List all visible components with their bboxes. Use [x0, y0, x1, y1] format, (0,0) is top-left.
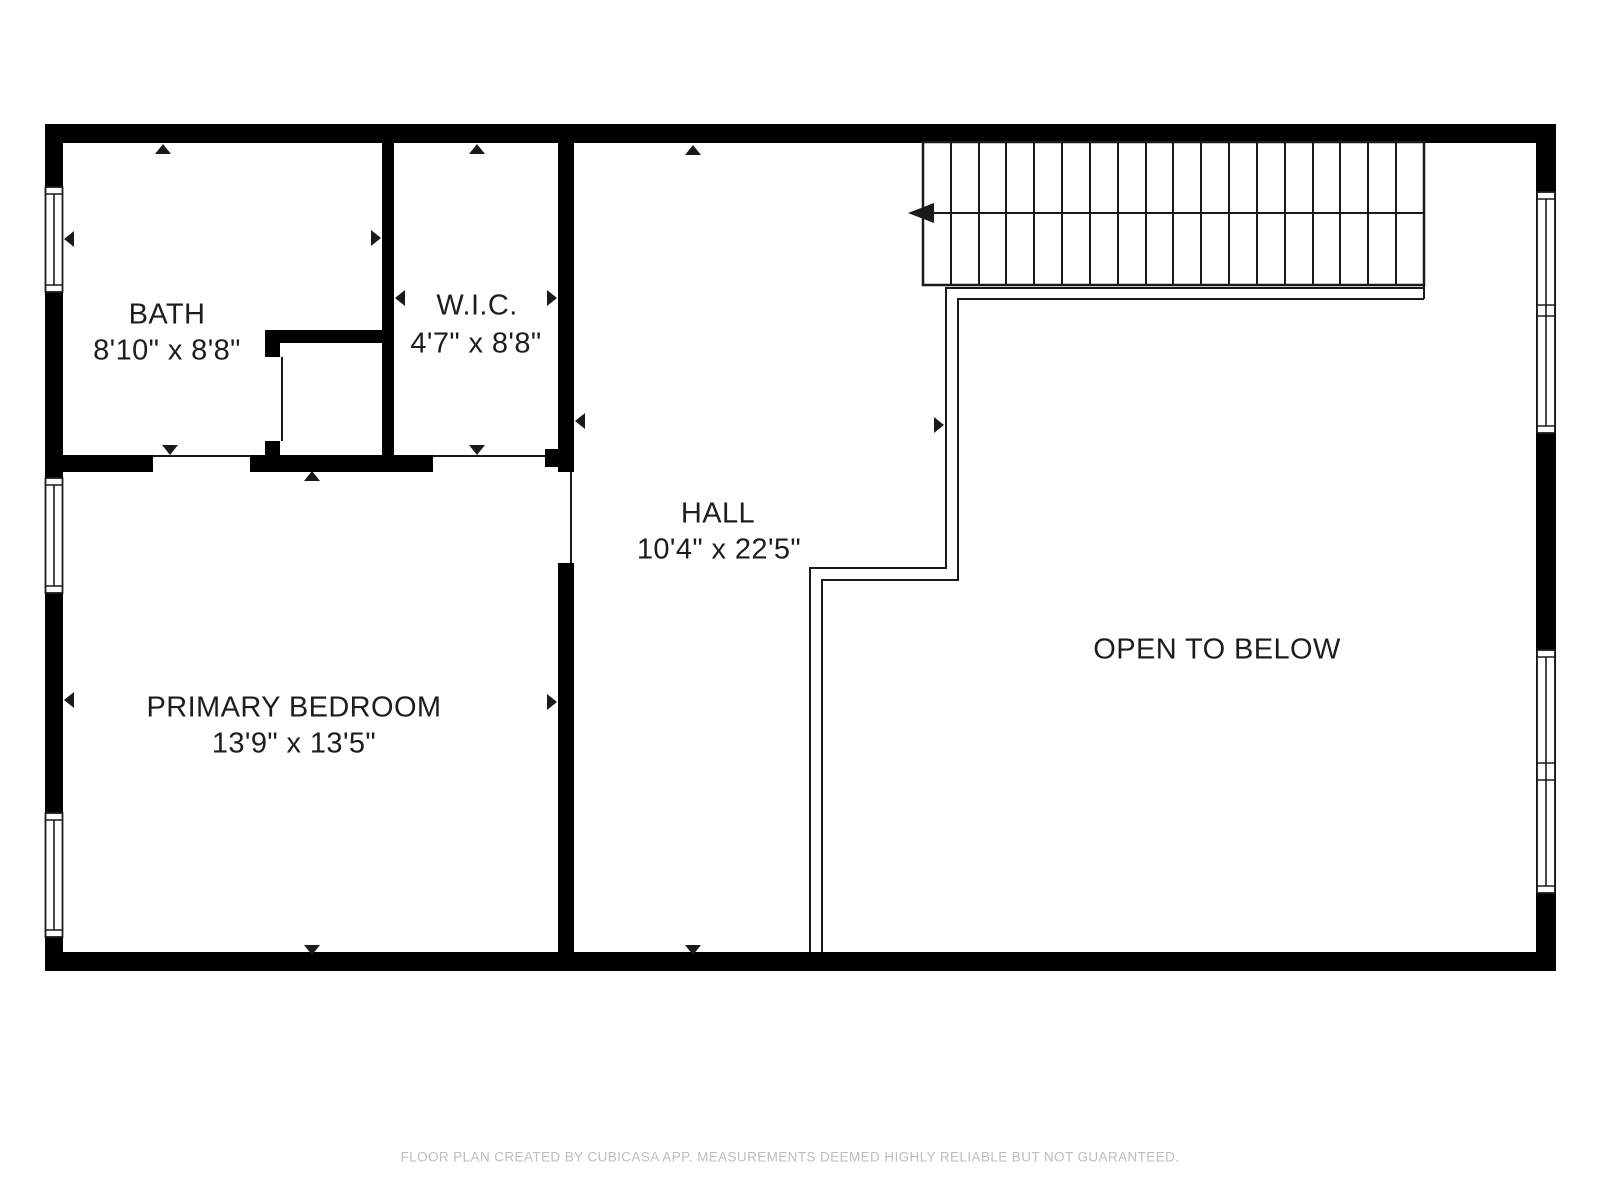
- marker-down-icon: [469, 445, 485, 455]
- marker-left-icon: [64, 692, 74, 708]
- marker-down-icon: [162, 445, 178, 455]
- hall-room-dims: 10'4" x 22'5": [637, 534, 801, 567]
- primary-bedroom-room-name: PRIMARY BEDROOM: [147, 692, 442, 725]
- open-to-below-railing: [810, 285, 1424, 952]
- wall-hall-west-upper: [558, 143, 574, 472]
- marker-right-icon: [547, 694, 557, 710]
- wall-closet-top: [265, 330, 382, 343]
- hall-room-name: HALL: [681, 498, 755, 531]
- marker-up-icon: [155, 144, 171, 154]
- marker-up-icon: [304, 471, 320, 481]
- marker-left-icon: [395, 290, 405, 306]
- wic-room-dims: 4'7" x 8'8": [410, 328, 541, 361]
- direction-markers: [64, 144, 944, 955]
- wall-closet-stub-bottom: [265, 441, 280, 455]
- railing-inner-line: [822, 299, 1424, 952]
- open-to-below-label: OPEN TO BELOW: [1093, 634, 1340, 667]
- window-pair: [1537, 650, 1555, 893]
- marker-right-icon: [547, 290, 557, 306]
- marker-up-icon: [685, 145, 701, 155]
- wall-closet-stub-top: [265, 343, 280, 357]
- wall-wic-nub: [545, 449, 559, 467]
- primary-bedroom-room-dims: 13'9" x 13'5": [212, 728, 376, 761]
- window: [46, 187, 63, 292]
- wall-top: [45, 124, 1556, 143]
- floorplan-drawing: [0, 0, 1600, 1200]
- stair-direction-arrow-icon: [908, 203, 934, 223]
- wall-bath-bedroom-b: [250, 455, 433, 472]
- window-pair: [1537, 192, 1555, 433]
- wic-room-name: W.I.C.: [436, 290, 517, 323]
- window: [46, 478, 63, 593]
- railing-outer-line: [810, 288, 1424, 952]
- staircase: [908, 142, 1424, 285]
- marker-left-icon: [575, 413, 585, 429]
- marker-right-icon: [934, 417, 944, 433]
- wall-hall-west-lower: [558, 563, 574, 952]
- footer-disclaimer: FLOOR PLAN CREATED BY CUBICASA APP. MEAS…: [401, 1150, 1180, 1165]
- floorplan-page: BATH 8'10" x 8'8" W.I.C. 4'7" x 8'8" HAL…: [0, 0, 1600, 1200]
- marker-right-icon: [371, 230, 381, 246]
- wall-bath-wic-divider: [382, 143, 394, 472]
- bath-room-name: BATH: [129, 299, 206, 332]
- marker-left-icon: [64, 231, 74, 247]
- bath-room-dims: 8'10" x 8'8": [93, 335, 241, 368]
- interior-walls: [63, 143, 574, 952]
- wall-bottom: [45, 952, 1556, 971]
- marker-up-icon: [469, 144, 485, 154]
- window: [46, 813, 63, 937]
- wall-bath-bedroom-a: [63, 455, 153, 472]
